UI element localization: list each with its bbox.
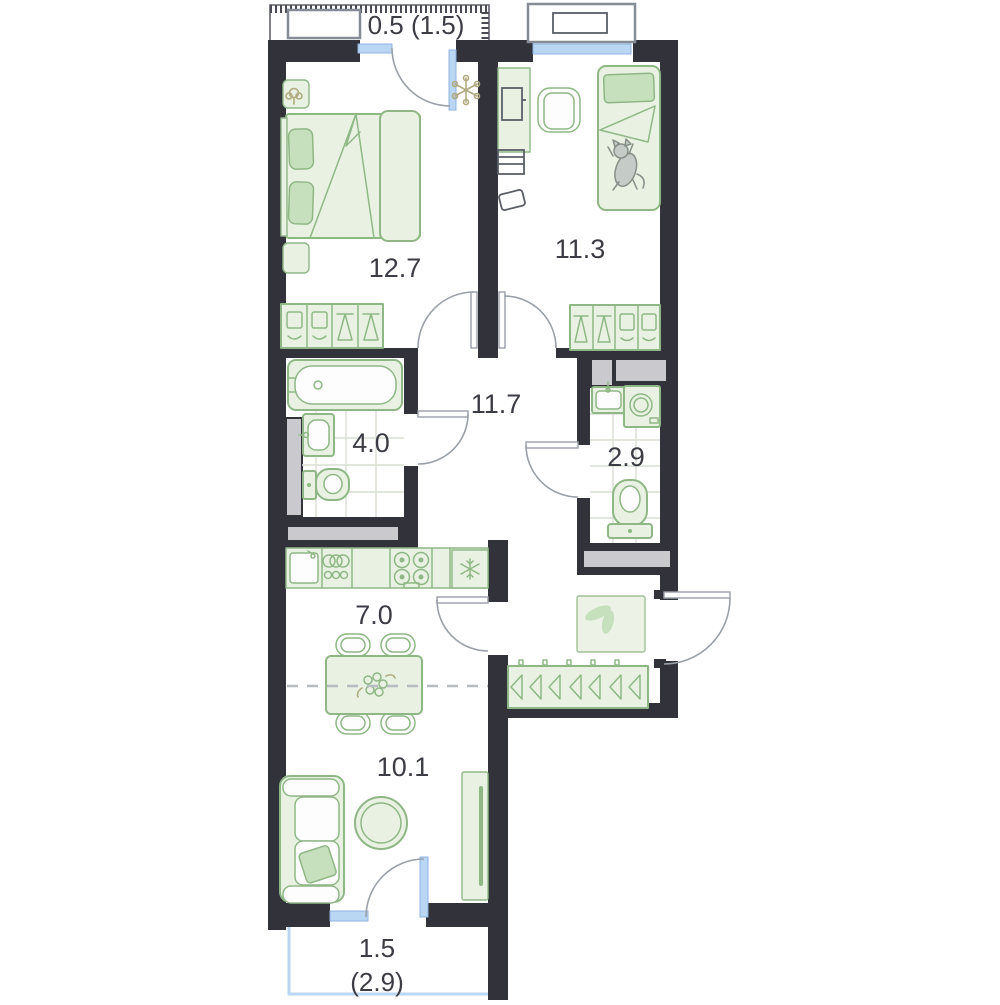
room-label-kitchen: 7.0	[355, 600, 393, 630]
coffee-table	[355, 797, 407, 849]
laptop	[498, 189, 525, 210]
bathroom-toilet	[303, 469, 349, 500]
bedroom-door	[418, 292, 477, 348]
children-room-window	[533, 44, 631, 54]
bedroom-balcony-door	[392, 48, 456, 110]
floor-plan: 0.5 (1.5) 12.7 11.3 11.7 4.0 2.9 7.0 10.…	[0, 0, 1000, 1000]
dining-set	[326, 634, 422, 734]
plant-decor	[453, 76, 480, 105]
floor-plan-page: 0.5 (1.5) 12.7 11.3 11.7 4.0 2.9 7.0 10.…	[0, 0, 1000, 1000]
bedroom	[281, 76, 480, 349]
nightstand-bottom	[283, 243, 309, 273]
entry-mat	[577, 596, 645, 652]
living-balcony-door	[366, 857, 428, 917]
washing-machine	[624, 386, 660, 427]
room-label-balcony-top: 0.5 (1.5)	[368, 10, 465, 40]
kitchen-sink	[290, 551, 318, 583]
tv-console	[462, 772, 488, 900]
double-bed	[281, 111, 420, 241]
room-label-children-room: 11.3	[555, 234, 606, 264]
toilet-room-door	[526, 442, 578, 497]
wardrobe	[570, 305, 660, 350]
fridge	[452, 550, 488, 588]
children-room-door	[499, 292, 556, 348]
room-label-balcony-bottom-line2: (2.9)	[350, 967, 403, 997]
tv-screen	[479, 786, 483, 886]
wardrobe	[281, 304, 383, 348]
sofa	[280, 776, 344, 903]
children-room-window-box	[528, 4, 635, 42]
wc-toilet	[608, 480, 652, 538]
living-room	[280, 772, 488, 903]
nightstand-top	[283, 80, 309, 108]
shelf	[498, 150, 524, 174]
bathroom-door	[418, 411, 468, 464]
desk	[498, 68, 530, 152]
room-label-living-room: 10.1	[377, 752, 430, 782]
kitchen-door	[437, 597, 488, 651]
room-label-hallway: 11.7	[471, 389, 522, 419]
room-label-bedroom: 12.7	[369, 253, 422, 283]
coat-rack	[508, 660, 648, 708]
living-balcony-window	[330, 911, 368, 921]
entrance-door	[654, 590, 730, 668]
children-room	[498, 66, 660, 350]
balcony-window	[288, 10, 360, 38]
single-bed	[598, 66, 660, 210]
wc-sink	[592, 382, 625, 413]
room-label-toilet-room: 2.9	[607, 442, 645, 472]
bathtub	[288, 360, 402, 410]
bathroom-sink	[299, 414, 334, 456]
room-label-bathroom: 4.0	[352, 428, 390, 458]
room-label-balcony-bottom-line1: 1.5	[359, 933, 395, 963]
bedroom-balcony-window	[358, 44, 392, 53]
desk-chair	[538, 88, 580, 132]
entry-hall	[508, 596, 648, 708]
